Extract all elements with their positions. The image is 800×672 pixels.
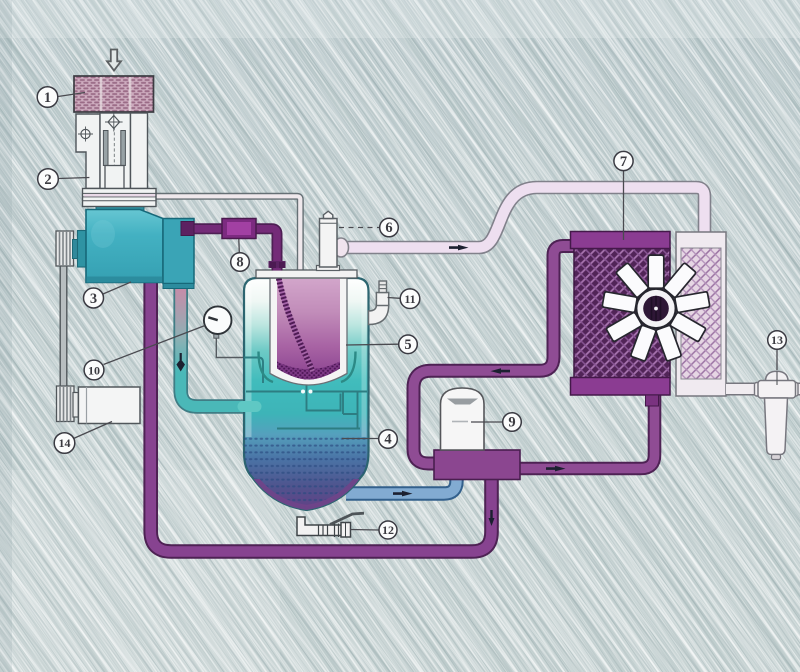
svg-text:10: 10: [88, 363, 100, 377]
svg-text:14: 14: [59, 436, 71, 450]
svg-text:4: 4: [384, 432, 391, 448]
svg-text:8: 8: [236, 255, 243, 271]
svg-text:5: 5: [404, 337, 411, 353]
svg-text:9: 9: [508, 415, 515, 431]
svg-text:3: 3: [90, 291, 97, 307]
svg-text:6: 6: [385, 220, 392, 236]
svg-text:13: 13: [771, 333, 783, 347]
svg-text:7: 7: [620, 154, 627, 170]
svg-text:11: 11: [404, 292, 415, 306]
svg-text:1: 1: [44, 90, 51, 106]
svg-text:12: 12: [382, 523, 394, 537]
svg-text:2: 2: [44, 172, 51, 188]
